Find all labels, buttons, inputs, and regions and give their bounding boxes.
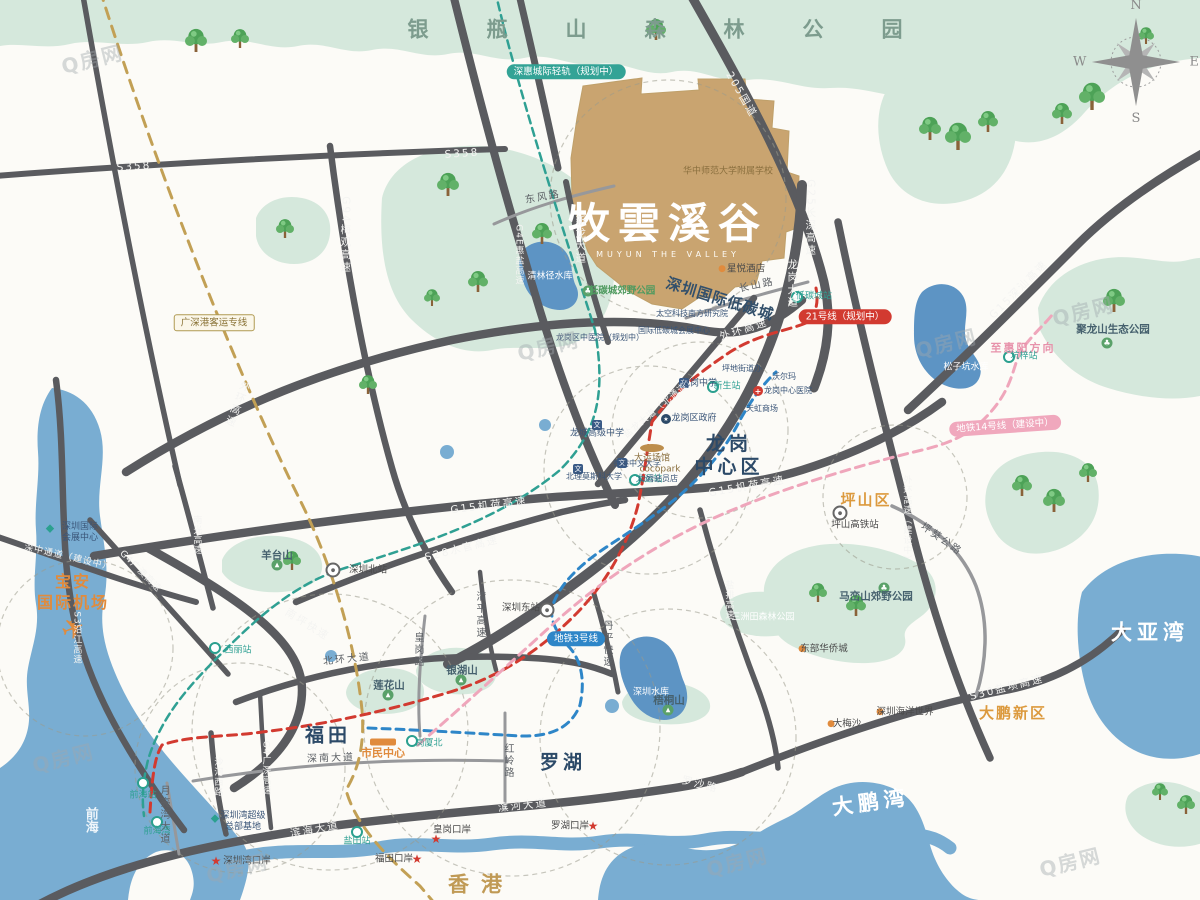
map-graphics <box>0 0 1200 900</box>
compass-star-icon <box>1088 14 1184 110</box>
compass-n: N <box>1130 0 1141 13</box>
compass-s: S <box>1132 111 1141 126</box>
compass-rose: N S W E <box>1088 14 1184 110</box>
compass-e: E <box>1190 55 1200 70</box>
compass-w: W <box>1073 55 1086 70</box>
location-map: N S W E ●●●★★★★●●●●▲▲▲▲♣♣♣文文文文+★✈◆◆ 银瓶山森… <box>0 0 1200 900</box>
